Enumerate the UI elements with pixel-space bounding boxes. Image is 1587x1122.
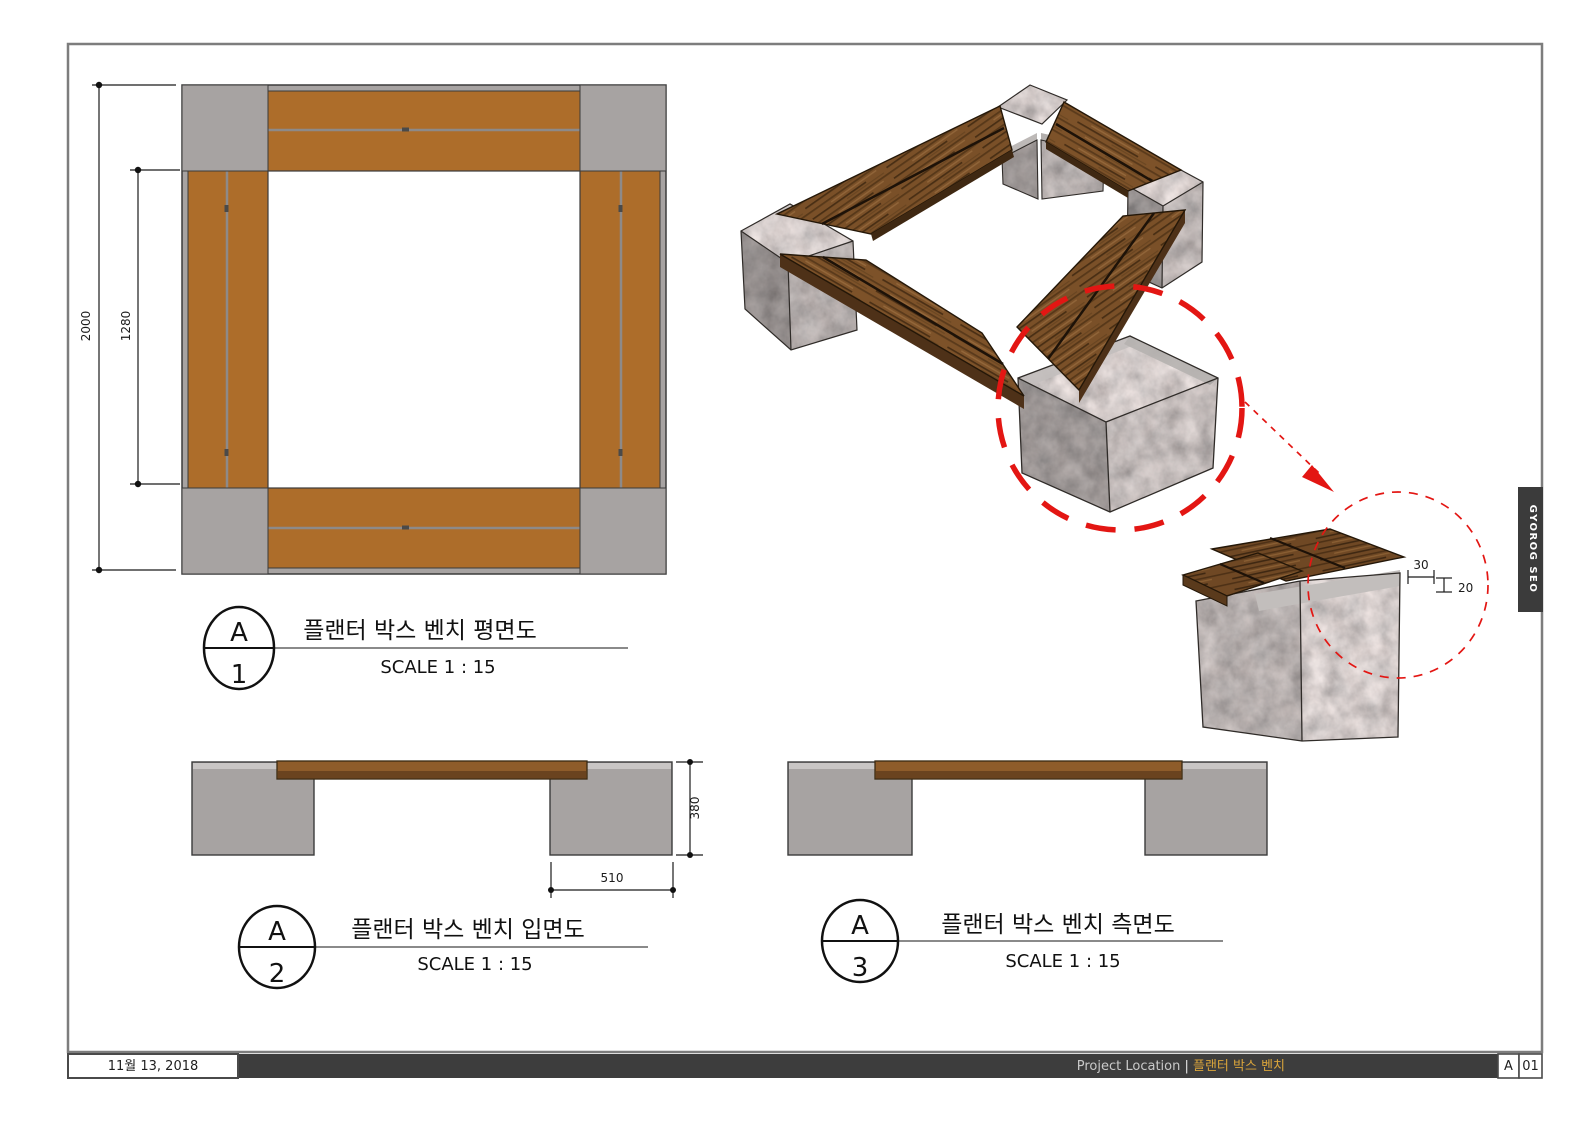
dim-height: 380 xyxy=(688,797,702,820)
plan-title: 플랜터 박스 벤치 평면도 xyxy=(303,618,537,644)
side-elevation xyxy=(788,761,1267,855)
detail-arrowhead-icon xyxy=(1302,465,1334,492)
dim-overall: 2000 xyxy=(79,311,93,342)
title-bar-background xyxy=(238,1054,1498,1078)
callout-plan: A 1 플랜터 박스 벤치 평면도 SCALE 1 : 15 xyxy=(204,607,628,690)
front-title: 플랜터 박스 벤치 입면도 xyxy=(351,917,585,943)
callout-plan-letter: A xyxy=(230,618,248,648)
plan-scale: SCALE 1 : 15 xyxy=(380,657,495,678)
project-name: 플랜터 박스 벤치 xyxy=(1193,1059,1285,1074)
sheet-canvas: 2000 1280 A 1 플랜터 박스 벤치 평면도 SCALE 1 : 15… xyxy=(0,0,1587,1122)
dim-block-width: 510 xyxy=(601,871,624,885)
project-location: Project Location | 플랜터 박스 벤치 xyxy=(1077,1059,1285,1074)
callout-plan-number: 1 xyxy=(231,660,248,690)
callout-side-number: 3 xyxy=(852,953,869,983)
revision-letter: A xyxy=(1504,1059,1513,1074)
callout-side-letter: A xyxy=(851,911,869,941)
sheet-number: 01 xyxy=(1522,1059,1539,1074)
perspective-view xyxy=(741,85,1334,530)
callout-side: A 3 플랜터 박스 벤치 측면도 SCALE 1 : 15 xyxy=(822,900,1223,983)
detail-leader-line xyxy=(1245,402,1320,474)
plan-opening xyxy=(268,171,580,488)
title-bar: 11월 13, 2018 Project Location | 플랜터 박스 벤… xyxy=(68,1054,1542,1078)
plan-dimensions xyxy=(92,82,180,573)
callout-front: A 2 플랜터 박스 벤치 입면도 SCALE 1 : 15 xyxy=(238,906,648,989)
drawing-sheet: 2000 1280 A 1 플랜터 박스 벤치 평면도 SCALE 1 : 15… xyxy=(0,0,1587,1122)
detail-view: 30 20 xyxy=(1183,492,1488,741)
dim-opening: 1280 xyxy=(119,311,133,342)
sheet-date: 11월 13, 2018 xyxy=(108,1059,199,1074)
footer-separator: | xyxy=(1184,1059,1193,1074)
author-tab: GYOROG SEO xyxy=(1518,487,1543,612)
plan-view xyxy=(182,85,666,574)
dim-ledge-depth: 20 xyxy=(1458,581,1473,595)
callout-front-number: 2 xyxy=(269,959,286,989)
side-scale: SCALE 1 : 15 xyxy=(1005,951,1120,972)
side-title: 플랜터 박스 벤치 측면도 xyxy=(941,912,1175,938)
project-location-label: Project Location xyxy=(1077,1059,1181,1074)
front-scale: SCALE 1 : 15 xyxy=(417,954,532,975)
front-elevation xyxy=(192,761,672,855)
author-tab-label: GYOROG SEO xyxy=(1527,505,1538,594)
dim-ledge-width: 30 xyxy=(1413,558,1428,572)
callout-front-letter: A xyxy=(268,917,286,947)
